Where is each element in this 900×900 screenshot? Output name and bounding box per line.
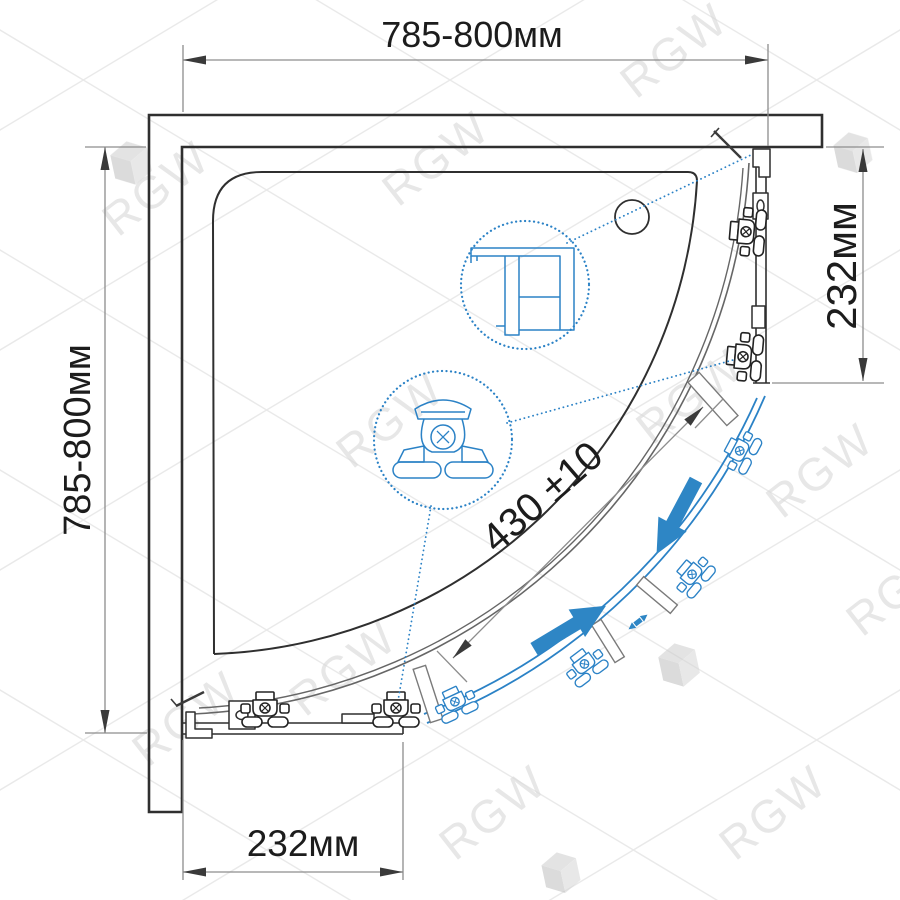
rgw-cube-icon	[831, 129, 874, 177]
dimension-bottom-label: 232мм	[247, 823, 360, 864]
sliding-door-arcs	[424, 396, 765, 723]
roller-carriage-icon	[669, 550, 718, 600]
technical-drawing-canvas: RGW RGW RGW RGW RGW RGW RGW RGW RGW RGW …	[0, 0, 900, 900]
slide-direction-arrow-icon	[642, 472, 710, 561]
dimension-top-label: 785-800мм	[381, 14, 563, 55]
watermark-text: RGW	[756, 412, 884, 528]
glass-end-seal	[714, 131, 741, 158]
dimension-diagonal-label: 430 ±10	[474, 433, 612, 561]
watermark-text: RGW	[372, 100, 500, 216]
watermark-layer: RGW RGW RGW RGW RGW RGW RGW RGW RGW RGW …	[0, 0, 900, 900]
rgw-cube-icon	[539, 849, 582, 897]
dimension-right-label: 232мм	[818, 202, 865, 330]
shower-enclosure-plan-drawing: RGW RGW RGW RGW RGW RGW RGW RGW RGW RGW …	[0, 0, 900, 900]
dimension-left-label: 785-800мм	[57, 344, 99, 536]
detail-circle-profile	[461, 154, 753, 349]
watermark-text: RGW	[429, 754, 557, 870]
dimension-diagonal: 430 ±10	[437, 399, 723, 682]
dimension-bottom: 232мм	[183, 740, 403, 880]
watermark-text: RGW	[709, 754, 837, 870]
watermark-text: RGW	[836, 530, 900, 646]
roller-carriage-icon	[718, 426, 763, 476]
dimension-right: 232мм	[772, 147, 884, 383]
tray-rim	[213, 172, 697, 654]
watermark-text: RGW	[326, 362, 454, 478]
watermark-text: RGW	[610, 0, 738, 108]
